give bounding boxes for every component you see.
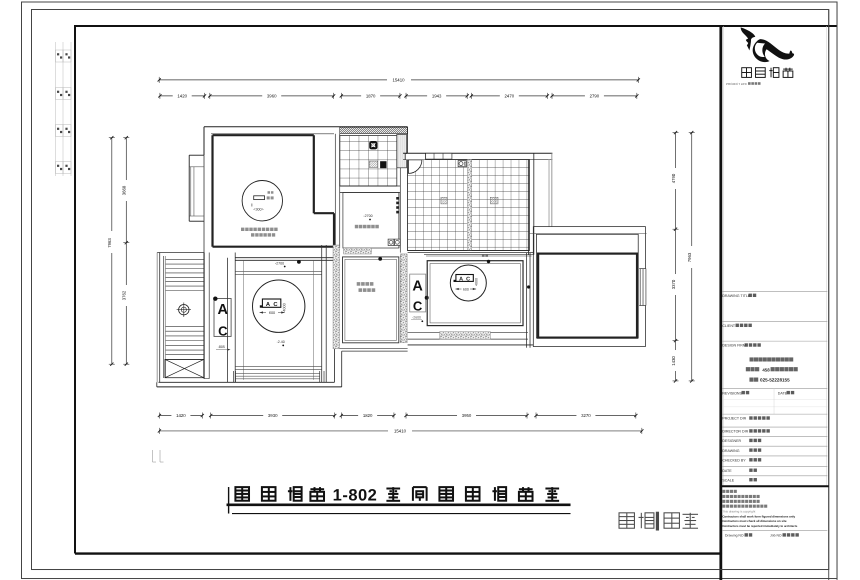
svg-text:Contractors must check all dim: Contractors must check all dimensions on… bbox=[722, 519, 786, 523]
svg-text:SCALE: SCALE bbox=[722, 478, 734, 482]
svg-text:C: C bbox=[413, 299, 423, 314]
svg-text:DRAWING TITLE: DRAWING TITLE bbox=[722, 294, 751, 298]
svg-text:A: A bbox=[412, 279, 423, 295]
svg-text:025-52228155: 025-52228155 bbox=[760, 378, 790, 383]
svg-text:2790: 2790 bbox=[590, 93, 600, 98]
svg-text:3950: 3950 bbox=[462, 413, 472, 418]
svg-text:1-802: 1-802 bbox=[333, 486, 378, 504]
svg-text:PROJECT LIFE: PROJECT LIFE bbox=[726, 82, 747, 86]
svg-text:-805: -805 bbox=[218, 345, 225, 349]
svg-text:-2700: -2700 bbox=[363, 214, 372, 218]
svg-text:REVISIONS: REVISIONS bbox=[722, 391, 742, 395]
svg-text:DRAWING: DRAWING bbox=[722, 449, 739, 453]
svg-text:Job NO: Job NO bbox=[770, 534, 782, 538]
svg-text:Drawing NO: Drawing NO bbox=[725, 534, 744, 538]
svg-text:3930: 3930 bbox=[268, 413, 278, 418]
svg-text:4790: 4790 bbox=[671, 173, 676, 183]
svg-text:2470: 2470 bbox=[505, 93, 515, 98]
svg-text:3668: 3668 bbox=[122, 185, 127, 195]
svg-text:1943: 1943 bbox=[432, 93, 442, 98]
svg-text:Contractors shall work form fi: Contractors shall work form figured dime… bbox=[722, 514, 795, 518]
svg-text:A: A bbox=[459, 276, 463, 282]
svg-text:600: 600 bbox=[463, 288, 469, 292]
svg-text:1870: 1870 bbox=[366, 93, 376, 98]
svg-text:3960: 3960 bbox=[267, 93, 277, 98]
svg-text:C: C bbox=[218, 323, 228, 338]
svg-text:600: 600 bbox=[269, 311, 275, 315]
svg-text:7963: 7963 bbox=[107, 238, 112, 248]
svg-text:<300>: <300> bbox=[253, 207, 263, 211]
svg-text:-2.40: -2.40 bbox=[277, 340, 285, 344]
svg-text:15410: 15410 bbox=[394, 428, 407, 433]
svg-text:1430: 1430 bbox=[671, 356, 676, 366]
svg-text:7963: 7963 bbox=[687, 252, 692, 262]
svg-text:3370: 3370 bbox=[671, 279, 676, 289]
svg-text:DESIGN FIRM: DESIGN FIRM bbox=[722, 344, 746, 348]
svg-text:4000: 4000 bbox=[475, 278, 479, 286]
svg-text:PROJECT DIR: PROJECT DIR bbox=[722, 417, 746, 421]
svg-text:DESIGNER: DESIGNER bbox=[722, 439, 741, 443]
svg-text:1420: 1420 bbox=[177, 93, 187, 98]
svg-text:This drawing is copyright: This drawing is copyright bbox=[722, 510, 755, 514]
svg-text:458: 458 bbox=[762, 367, 770, 372]
svg-text:Contractors must be reported i: Contractors must be reported immediately… bbox=[722, 524, 797, 528]
svg-text:3762: 3762 bbox=[122, 290, 127, 300]
svg-text:CLIENT: CLIENT bbox=[722, 324, 736, 328]
svg-text:-2600: -2600 bbox=[412, 315, 421, 319]
svg-text:-2700: -2700 bbox=[275, 261, 284, 265]
svg-text:15410: 15410 bbox=[393, 77, 406, 82]
svg-text:A: A bbox=[218, 302, 229, 318]
svg-text:DATE: DATE bbox=[778, 391, 788, 395]
svg-text:DATE: DATE bbox=[722, 469, 732, 473]
svg-text:1820: 1820 bbox=[363, 413, 373, 418]
svg-text:4000: 4000 bbox=[282, 303, 286, 311]
svg-text:DIRECTOR DIR: DIRECTOR DIR bbox=[722, 430, 748, 434]
svg-text:CHECKED BY: CHECKED BY bbox=[722, 459, 746, 463]
svg-text:1420: 1420 bbox=[176, 413, 186, 418]
svg-text:3270: 3270 bbox=[581, 413, 591, 418]
svg-text:C: C bbox=[466, 276, 470, 282]
